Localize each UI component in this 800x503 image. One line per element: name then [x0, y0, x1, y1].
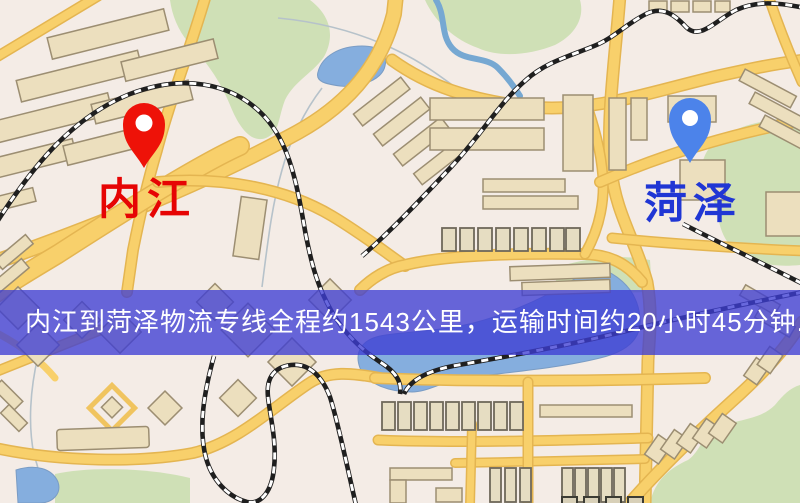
route-info-banner: 内江到菏泽物流专线全程约1543公里，运输时间约20小时45分钟.	[0, 290, 800, 355]
map-screenshot: 内江 菏泽 内江到菏泽物流专线全程约1543公里，运输时间约20小时45分钟.	[0, 0, 800, 503]
destination-label: 菏泽	[644, 183, 742, 226]
map-canvas[interactable]	[0, 0, 800, 503]
origin-label: 内江	[98, 179, 196, 222]
